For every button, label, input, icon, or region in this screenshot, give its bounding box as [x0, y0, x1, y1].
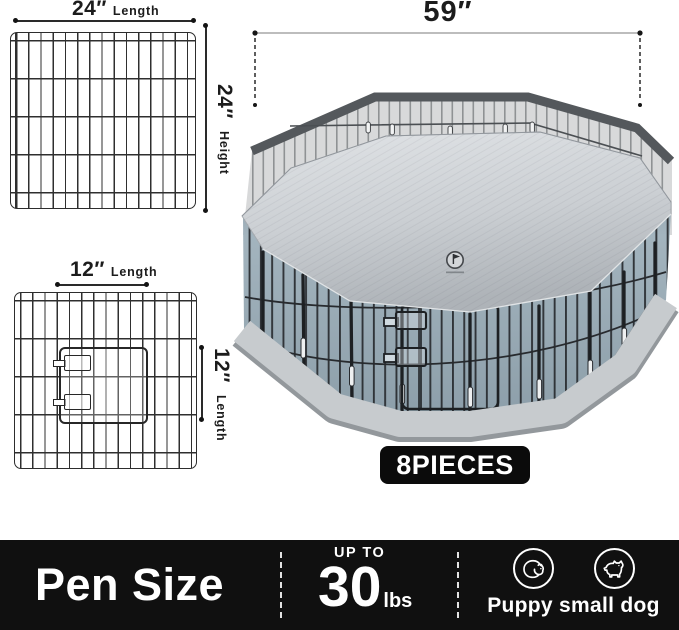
dog-types-label: Puppy small dog — [487, 594, 660, 618]
weight-limit-block: UP TO 30 lbs — [318, 545, 430, 616]
bar-divider — [280, 552, 282, 618]
product-infographic: 24″ Length 24″ Height 12″ Length 12″ Len… — [0, 0, 679, 630]
pen-size-title: Pen Size — [35, 540, 224, 630]
bar-divider — [457, 552, 459, 618]
weight-value: 30 — [318, 559, 381, 616]
pieces-badge: 8PIECES — [380, 446, 530, 484]
dog-types-block: Puppy small dog — [468, 548, 679, 618]
puppy-icon — [513, 548, 554, 589]
small-dog-icon — [594, 548, 635, 589]
bottom-info-bar: Pen Size UP TO 30 lbs — [0, 540, 679, 630]
playpen-illustration — [0, 0, 679, 510]
weight-unit: lbs — [383, 590, 412, 613]
